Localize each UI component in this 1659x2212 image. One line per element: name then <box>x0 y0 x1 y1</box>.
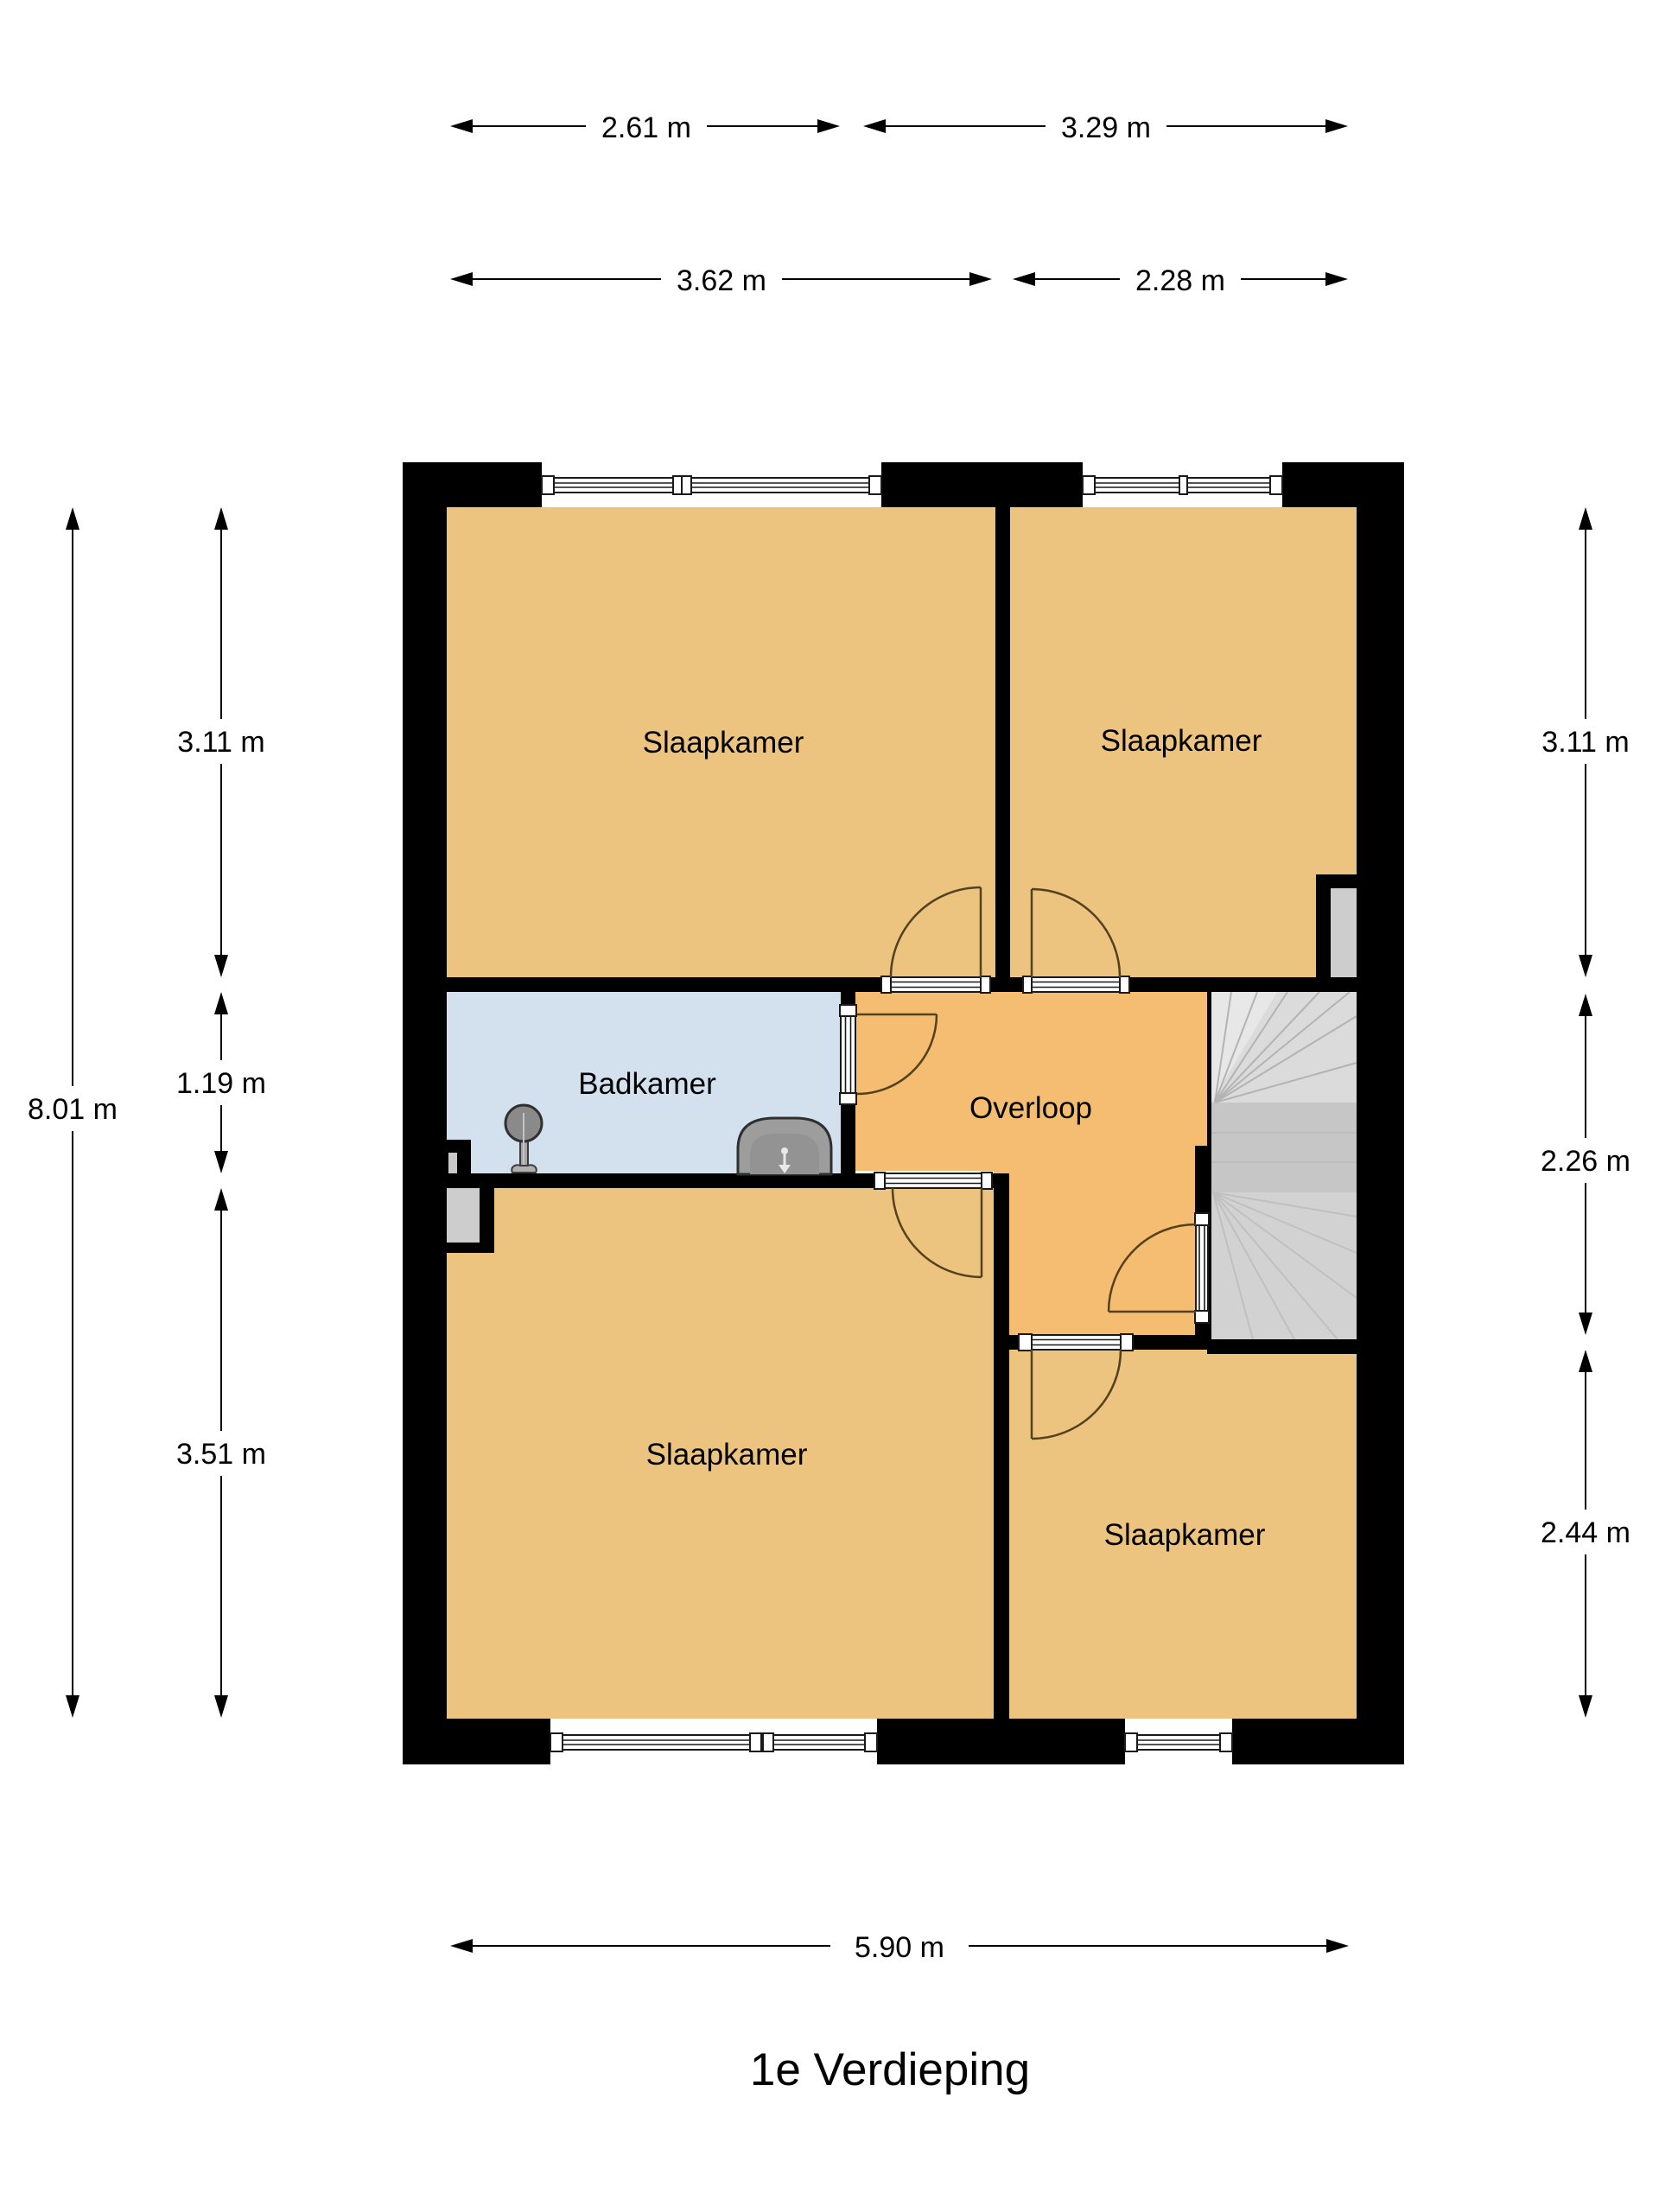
svg-text:2.28 m: 2.28 m <box>1135 264 1225 297</box>
svg-text:3.29 m: 3.29 m <box>1061 111 1151 144</box>
svg-text:1.19 m: 1.19 m <box>176 1067 266 1100</box>
svg-text:8.01 m: 8.01 m <box>28 1093 118 1126</box>
svg-text:1e Verdieping: 1e Verdieping <box>750 2044 1030 2095</box>
svg-text:3.51 m: 3.51 m <box>176 1438 266 1471</box>
svg-text:2.44 m: 2.44 m <box>1541 1516 1630 1549</box>
svg-text:Slaapkamer: Slaapkamer <box>1101 724 1262 758</box>
svg-text:2.26 m: 2.26 m <box>1541 1145 1630 1178</box>
svg-text:5.90 m: 5.90 m <box>855 1931 944 1964</box>
svg-text:Slaapkamer: Slaapkamer <box>646 1438 808 1471</box>
svg-text:3.11 m: 3.11 m <box>177 726 264 759</box>
svg-text:2.61 m: 2.61 m <box>601 111 691 144</box>
svg-text:Overloop: Overloop <box>969 1091 1092 1125</box>
svg-text:3.62 m: 3.62 m <box>677 264 766 297</box>
svg-text:Slaapkamer: Slaapkamer <box>1104 1518 1266 1552</box>
svg-text:Badkamer: Badkamer <box>578 1067 716 1101</box>
svg-text:3.11 m: 3.11 m <box>1541 726 1629 759</box>
svg-text:Slaapkamer: Slaapkamer <box>643 726 804 760</box>
